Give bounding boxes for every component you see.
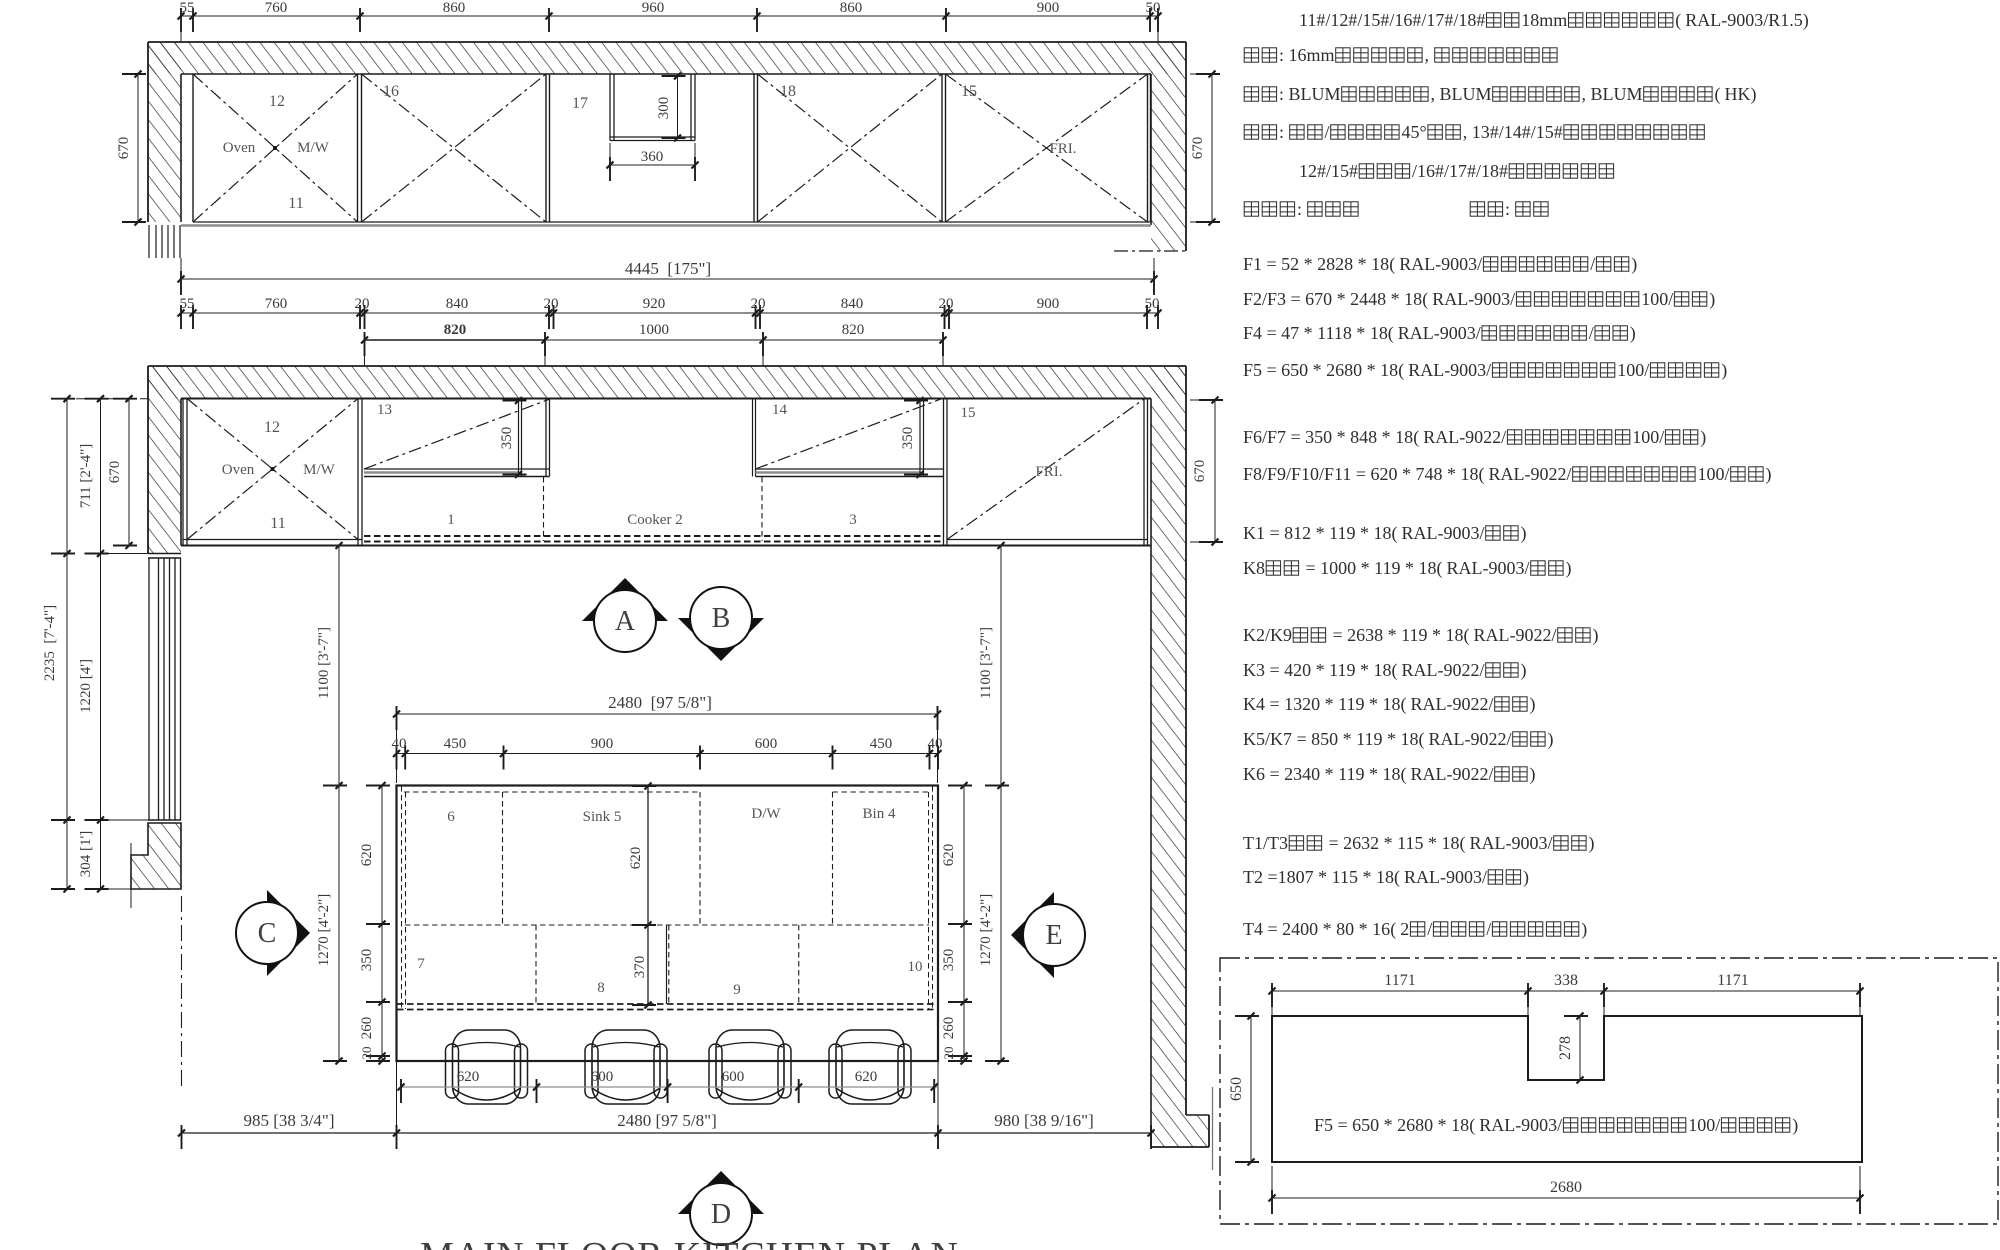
svg-text:300: 300 bbox=[656, 97, 672, 120]
svg-text:Sink 5: Sink 5 bbox=[583, 809, 622, 825]
svg-text:(: ( bbox=[1401, 764, 1407, 785]
svg-text:K2/K9: K2/K9 bbox=[1243, 625, 1292, 645]
svg-text:820: 820 bbox=[842, 322, 865, 338]
svg-text:18mm: 18mm bbox=[1521, 10, 1567, 30]
svg-text:15: 15 bbox=[961, 405, 976, 421]
svg-text:Bin 4: Bin 4 bbox=[863, 806, 896, 822]
svg-text:HK: HK bbox=[1725, 84, 1751, 104]
svg-text:,: , bbox=[1425, 45, 1430, 65]
svg-text:, BLUM: , BLUM bbox=[1582, 84, 1643, 104]
svg-text:16: 16 bbox=[383, 83, 399, 100]
svg-text:760: 760 bbox=[265, 0, 288, 16]
svg-text:50: 50 bbox=[1145, 296, 1160, 312]
svg-text:E: E bbox=[1045, 920, 1062, 951]
svg-text:2480 [97 5/8"]: 2480 [97 5/8"] bbox=[617, 1111, 717, 1130]
svg-text:): ) bbox=[1630, 323, 1636, 344]
svg-text:(: ( bbox=[1715, 84, 1721, 105]
svg-text:(: ( bbox=[1389, 254, 1395, 275]
svg-text:860: 860 bbox=[840, 0, 863, 16]
svg-text:(: ( bbox=[1464, 625, 1470, 646]
svg-text:100/: 100/ bbox=[1617, 360, 1649, 380]
svg-text:F1 = 52 * 2828 * 18: F1 = 52 * 2828 * 18 bbox=[1243, 254, 1389, 274]
svg-text:620: 620 bbox=[941, 844, 957, 867]
svg-text:620: 620 bbox=[457, 1069, 480, 1085]
svg-text:7: 7 bbox=[417, 956, 425, 972]
svg-text:55: 55 bbox=[180, 0, 195, 16]
svg-text:): ) bbox=[1721, 360, 1727, 381]
svg-text:Oven: Oven bbox=[223, 140, 256, 156]
svg-text:): ) bbox=[1530, 764, 1536, 785]
svg-text:450: 450 bbox=[870, 736, 893, 752]
svg-text:T2 =1807 * 115 * 18: T2 =1807 * 115 * 18 bbox=[1243, 867, 1394, 887]
svg-text:900: 900 bbox=[591, 736, 614, 752]
svg-text:): ) bbox=[1700, 427, 1706, 448]
svg-text:900: 900 bbox=[1037, 296, 1060, 312]
svg-text:F8/F9/F10/F11 = 620 * 748 * 18: F8/F9/F10/F11 = 620 * 748 * 18 bbox=[1243, 464, 1479, 484]
svg-text:, BLUM: , BLUM bbox=[1431, 84, 1492, 104]
svg-text:FRI.: FRI. bbox=[1049, 141, 1076, 157]
svg-text:1220 [4']: 1220 [4'] bbox=[78, 659, 94, 713]
svg-text:F5 = 650 * 2680 * 18: F5 = 650 * 2680 * 18 bbox=[1314, 1115, 1469, 1135]
svg-text:20: 20 bbox=[359, 1047, 374, 1060]
svg-text:11#/12#/15#/16#/17#/18#: 11#/12#/15#/16#/17#/18# bbox=[1299, 10, 1485, 30]
svg-text:D/W: D/W bbox=[751, 806, 781, 822]
svg-text:/: / bbox=[1325, 122, 1330, 142]
svg-text:840: 840 bbox=[446, 296, 469, 312]
svg-text:12: 12 bbox=[264, 419, 280, 436]
svg-text:(: ( bbox=[1413, 427, 1419, 448]
svg-text:(: ( bbox=[1675, 10, 1681, 31]
svg-text:760: 760 bbox=[265, 296, 288, 312]
svg-text:/: / bbox=[1590, 254, 1595, 274]
svg-text:M/W: M/W bbox=[303, 462, 336, 478]
svg-text:920: 920 bbox=[643, 296, 666, 312]
svg-text:): ) bbox=[1523, 867, 1529, 888]
svg-text:B: B bbox=[712, 603, 731, 634]
svg-text:F2/F3 = 670 * 2448 * 18: F2/F3 = 670 * 2448 * 18 bbox=[1243, 289, 1422, 309]
svg-text:/: / bbox=[1589, 323, 1594, 343]
svg-text:): ) bbox=[1521, 660, 1527, 681]
svg-text:12#/15#: 12#/15# bbox=[1299, 161, 1358, 181]
svg-text:(: ( bbox=[1422, 289, 1428, 310]
svg-text:= 2632 * 115 * 18: = 2632 * 115 * 18 bbox=[1324, 833, 1459, 853]
svg-text:860: 860 bbox=[443, 0, 466, 16]
svg-text:40: 40 bbox=[392, 736, 407, 752]
svg-text:1171: 1171 bbox=[1384, 972, 1415, 989]
svg-text:1171: 1171 bbox=[1717, 972, 1748, 989]
svg-text:3: 3 bbox=[849, 512, 857, 528]
svg-text:(: ( bbox=[1437, 558, 1443, 579]
svg-text:600: 600 bbox=[755, 736, 778, 752]
svg-text:8: 8 bbox=[597, 980, 605, 996]
svg-text:): ) bbox=[1530, 694, 1536, 715]
svg-text:): ) bbox=[1581, 919, 1587, 940]
svg-text:670: 670 bbox=[107, 461, 123, 484]
svg-text:(: ( bbox=[1392, 660, 1398, 681]
svg-text:711 [2'-4"]: 711 [2'-4"] bbox=[78, 444, 94, 509]
svg-text:10: 10 bbox=[908, 959, 923, 975]
svg-text:620: 620 bbox=[628, 847, 644, 870]
svg-text:RAL-9003/: RAL-9003/ bbox=[1470, 833, 1553, 853]
svg-text:RAL-9003/: RAL-9003/ bbox=[1408, 360, 1491, 380]
svg-text:13: 13 bbox=[377, 402, 392, 418]
svg-text:K1 = 812 * 119 * 18: K1 = 812 * 119 * 18 bbox=[1243, 523, 1391, 543]
svg-text:100/: 100/ bbox=[1632, 427, 1664, 447]
svg-text:RAL-9022/: RAL-9022/ bbox=[1402, 660, 1485, 680]
svg-text:450: 450 bbox=[444, 736, 467, 752]
svg-text:(: ( bbox=[1460, 833, 1466, 854]
svg-text:K4 = 1320 * 119 * 18: K4 = 1320 * 119 * 18 bbox=[1243, 694, 1400, 714]
svg-text:K6 = 2340 * 119 * 18: K6 = 2340 * 119 * 18 bbox=[1243, 764, 1400, 784]
svg-text:T1/T3: T1/T3 bbox=[1243, 833, 1288, 853]
svg-text:= 1000 * 119 * 18: = 1000 * 119 * 18 bbox=[1301, 558, 1436, 578]
svg-text:6: 6 bbox=[447, 809, 455, 825]
svg-text:RAL-9003/: RAL-9003/ bbox=[1402, 523, 1485, 543]
svg-text:1270 [4'-2"]: 1270 [4'-2"] bbox=[316, 894, 332, 967]
svg-text:): ) bbox=[1566, 558, 1572, 579]
svg-text:(: ( bbox=[1469, 1115, 1475, 1136]
svg-text:RAL-9003/: RAL-9003/ bbox=[1404, 867, 1487, 887]
svg-text:2480 [97 5/8"]: 2480 [97 5/8"] bbox=[608, 693, 712, 712]
svg-text:1: 1 bbox=[447, 512, 455, 528]
svg-text:2235 [7'-4"]: 2235 [7'-4"] bbox=[42, 605, 58, 681]
svg-text:370: 370 bbox=[632, 956, 648, 979]
svg-text:(: ( bbox=[1390, 919, 1396, 940]
svg-text:RAL-9022/: RAL-9022/ bbox=[1489, 464, 1572, 484]
svg-text:RAL-9022/: RAL-9022/ bbox=[1474, 625, 1557, 645]
svg-text:14: 14 bbox=[772, 402, 788, 418]
svg-text:600: 600 bbox=[722, 1069, 745, 1085]
svg-text:100/: 100/ bbox=[1641, 289, 1673, 309]
svg-text:MAIN FLOOR KITCHEN PLAN: MAIN FLOOR KITCHEN PLAN bbox=[420, 1235, 959, 1250]
svg-text:: BLUM: : BLUM bbox=[1279, 84, 1341, 104]
svg-text:350: 350 bbox=[359, 949, 375, 972]
svg-text:260: 260 bbox=[941, 1017, 957, 1040]
svg-text:670: 670 bbox=[1192, 460, 1208, 483]
svg-text:670: 670 bbox=[116, 137, 132, 160]
svg-text:620: 620 bbox=[855, 1069, 878, 1085]
svg-text:K5/K7 = 850 * 119 * 18: K5/K7 = 850 * 119 * 18 bbox=[1243, 729, 1418, 749]
svg-text:(: ( bbox=[1419, 729, 1425, 750]
svg-text:RAL-9003/: RAL-9003/ bbox=[1432, 289, 1515, 309]
svg-text:): ) bbox=[1521, 523, 1527, 544]
svg-text:650: 650 bbox=[1228, 1077, 1245, 1101]
svg-text:T4 = 2400 * 80 * 16: T4 = 2400 * 80 * 16 bbox=[1243, 919, 1390, 939]
svg-text:/: / bbox=[1486, 919, 1491, 939]
svg-text:20: 20 bbox=[939, 296, 954, 312]
svg-text:11: 11 bbox=[288, 195, 303, 212]
svg-text:350: 350 bbox=[499, 427, 515, 450]
svg-text:18: 18 bbox=[780, 83, 796, 100]
svg-text:, 13#/14#/15#: , 13#/14#/15# bbox=[1463, 122, 1563, 142]
svg-text:1100 [3'-7"]: 1100 [3'-7"] bbox=[316, 627, 332, 699]
svg-text:1100 [3'-7"]: 1100 [3'-7"] bbox=[978, 627, 994, 699]
svg-text:): ) bbox=[1792, 1115, 1798, 1136]
svg-text:): ) bbox=[1751, 84, 1757, 105]
svg-text:F4 = 47 * 1118 * 18: F4 = 47 * 1118 * 18 bbox=[1243, 323, 1388, 343]
svg-text:(: ( bbox=[1388, 323, 1394, 344]
svg-text:840: 840 bbox=[841, 296, 864, 312]
svg-text:RAL-9022/: RAL-9022/ bbox=[1411, 694, 1494, 714]
svg-text:600: 600 bbox=[591, 1069, 614, 1085]
svg-text:9: 9 bbox=[733, 982, 741, 998]
svg-text:C: C bbox=[258, 918, 277, 949]
svg-text:980 [38 9/16"]: 980 [38 9/16"] bbox=[994, 1111, 1094, 1130]
svg-text:304 [1']: 304 [1'] bbox=[78, 831, 94, 877]
svg-text:D: D bbox=[711, 1199, 731, 1230]
svg-text::: : bbox=[1279, 122, 1289, 142]
svg-text:2: 2 bbox=[1400, 919, 1409, 939]
svg-text:338: 338 bbox=[1554, 972, 1578, 989]
svg-text:= 2638 * 119 * 18: = 2638 * 119 * 18 bbox=[1328, 625, 1463, 645]
svg-text:278: 278 bbox=[1557, 1036, 1574, 1060]
svg-text:(: ( bbox=[1394, 867, 1400, 888]
svg-text:985 [38 3/4"]: 985 [38 3/4"] bbox=[244, 1111, 335, 1130]
svg-text:40: 40 bbox=[928, 736, 943, 752]
svg-text:F6/F7 = 350 * 848 * 18: F6/F7 = 350 * 848 * 18 bbox=[1243, 427, 1413, 447]
svg-text:(: ( bbox=[1401, 694, 1407, 715]
svg-text:FRI.: FRI. bbox=[1035, 464, 1062, 480]
svg-text:/16#/17#/18#: /16#/17#/18# bbox=[1412, 161, 1508, 181]
svg-text:(: ( bbox=[1398, 360, 1404, 381]
svg-text:15: 15 bbox=[961, 83, 977, 100]
svg-text:): ) bbox=[1766, 464, 1772, 485]
svg-text:20: 20 bbox=[355, 296, 370, 312]
svg-text:20: 20 bbox=[751, 296, 766, 312]
svg-text:4445 [175"]: 4445 [175"] bbox=[625, 259, 711, 278]
svg-text:RAL-9003/: RAL-9003/ bbox=[1479, 1115, 1562, 1135]
svg-text:(: ( bbox=[1392, 523, 1398, 544]
svg-text:): ) bbox=[1631, 254, 1637, 275]
svg-text:900: 900 bbox=[1037, 0, 1060, 16]
svg-text:960: 960 bbox=[642, 0, 665, 16]
svg-text:Oven: Oven bbox=[222, 462, 255, 478]
svg-text:): ) bbox=[1589, 833, 1595, 854]
svg-text:55: 55 bbox=[180, 296, 195, 312]
svg-text:RAL-9022/: RAL-9022/ bbox=[1411, 764, 1494, 784]
svg-text:RAL-9003/: RAL-9003/ bbox=[1398, 323, 1481, 343]
svg-text:100/: 100/ bbox=[1688, 1115, 1720, 1135]
svg-text:RAL-9003/: RAL-9003/ bbox=[1399, 254, 1482, 274]
svg-text:K3 = 420 * 119 * 18: K3 = 420 * 119 * 18 bbox=[1243, 660, 1391, 680]
svg-text:11: 11 bbox=[270, 515, 285, 532]
svg-text:360: 360 bbox=[641, 149, 664, 165]
svg-text:17: 17 bbox=[572, 95, 588, 112]
svg-text:Cooker 2: Cooker 2 bbox=[627, 512, 682, 528]
svg-text:RAL-9022/: RAL-9022/ bbox=[1429, 729, 1512, 749]
svg-text:RAL-9003/R1.5: RAL-9003/R1.5 bbox=[1685, 10, 1803, 30]
svg-text:(: ( bbox=[1479, 464, 1485, 485]
svg-text:F5 = 650 * 2680 * 18: F5 = 650 * 2680 * 18 bbox=[1243, 360, 1398, 380]
svg-text:): ) bbox=[1709, 289, 1715, 310]
svg-text:M/W: M/W bbox=[297, 140, 330, 156]
svg-text:A: A bbox=[615, 606, 636, 637]
svg-text:670: 670 bbox=[1190, 137, 1206, 160]
svg-text:): ) bbox=[1593, 625, 1599, 646]
svg-text:20: 20 bbox=[544, 296, 559, 312]
svg-text:20: 20 bbox=[941, 1047, 956, 1060]
svg-text:12: 12 bbox=[269, 93, 285, 110]
svg-text::: : bbox=[1505, 199, 1515, 219]
svg-text:): ) bbox=[1548, 729, 1554, 750]
svg-text:100/: 100/ bbox=[1698, 464, 1730, 484]
svg-text:45°: 45° bbox=[1402, 122, 1427, 142]
svg-text:50: 50 bbox=[1146, 0, 1161, 16]
svg-text:: 16mm: : 16mm bbox=[1279, 45, 1335, 65]
svg-text:820: 820 bbox=[444, 322, 467, 338]
svg-text:350: 350 bbox=[941, 949, 957, 972]
svg-text:2680: 2680 bbox=[1550, 1179, 1582, 1196]
svg-text::: : bbox=[1297, 199, 1307, 219]
svg-text:620: 620 bbox=[359, 844, 375, 867]
svg-text:/: / bbox=[1427, 919, 1432, 939]
svg-text:1000: 1000 bbox=[639, 322, 669, 338]
svg-text:RAL-9003/: RAL-9003/ bbox=[1447, 558, 1530, 578]
svg-text:RAL-9022/: RAL-9022/ bbox=[1423, 427, 1506, 447]
svg-text:): ) bbox=[1803, 10, 1809, 31]
svg-text:K8: K8 bbox=[1243, 558, 1265, 578]
svg-text:1270 [4'-2"]: 1270 [4'-2"] bbox=[978, 894, 994, 967]
svg-text:260: 260 bbox=[359, 1017, 375, 1040]
svg-text:350: 350 bbox=[900, 427, 916, 450]
